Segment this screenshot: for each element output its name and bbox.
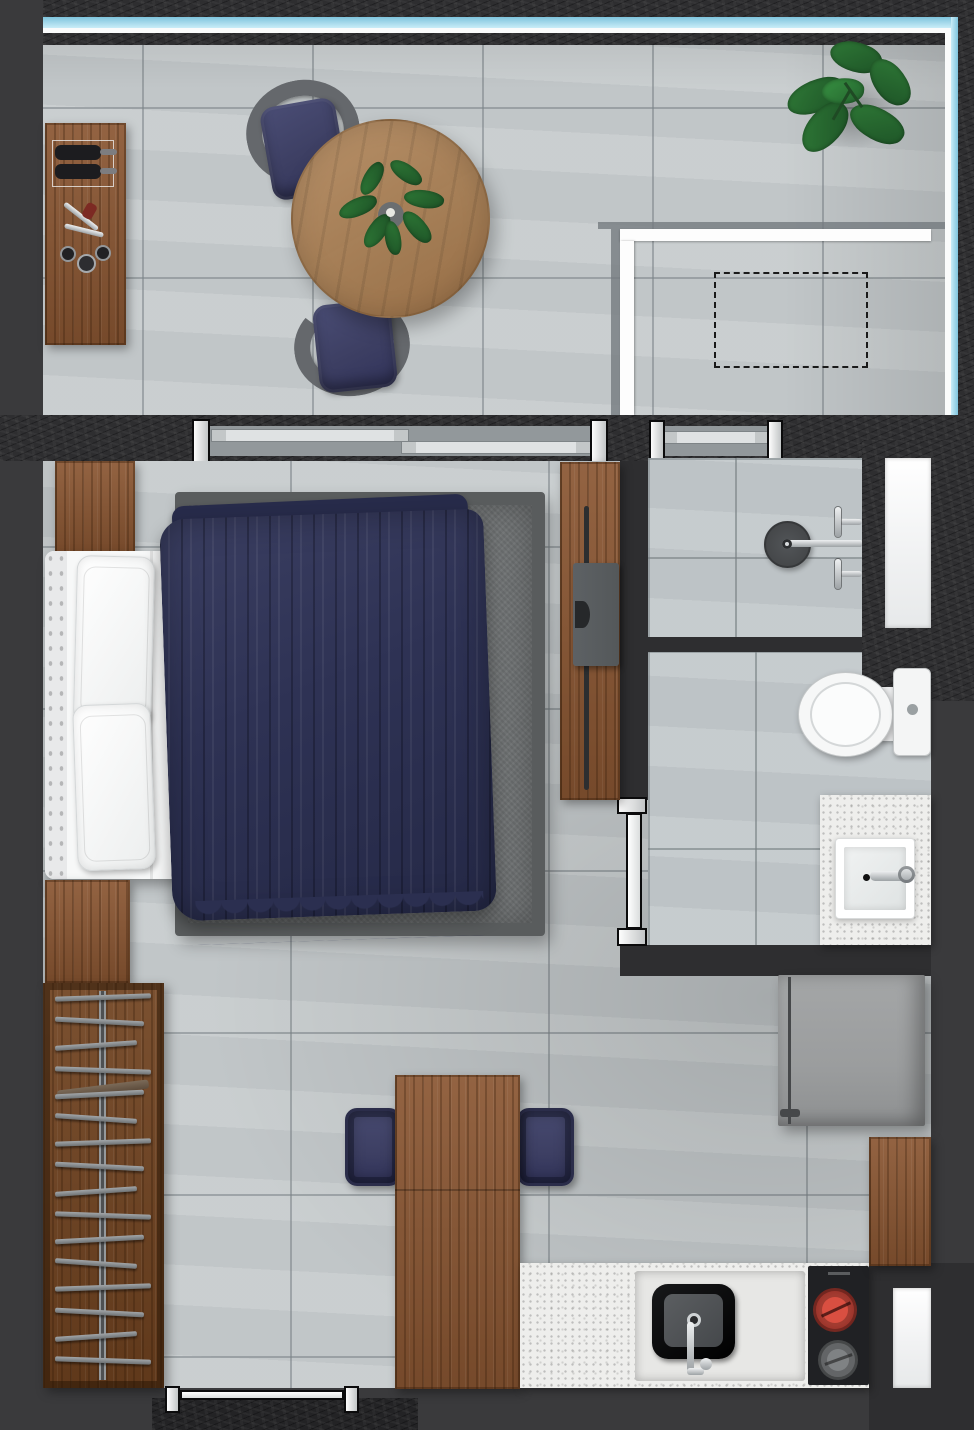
mixer-valve-1-stem (840, 519, 862, 525)
table-plant-leaf (336, 192, 380, 221)
stool-east (517, 1108, 574, 1186)
pillow-north (73, 555, 155, 725)
stool-west (345, 1108, 401, 1186)
wc-floor-joint-v (755, 651, 757, 946)
table-plant-leaf (384, 220, 403, 255)
bedroom-sliding-door-panel-b (401, 441, 591, 454)
table-plant-leaf (387, 154, 426, 190)
wine-bottle-1-neck (100, 149, 117, 155)
clothes-hanger (55, 1186, 137, 1197)
bathroom-south-wall (620, 945, 931, 976)
shower-window (885, 458, 931, 628)
table-plant-leaf (355, 159, 390, 198)
bed-headboard (45, 551, 67, 879)
shower-room-floor (648, 458, 862, 638)
bench-strip (45, 880, 130, 983)
dashed-unit-outline (714, 272, 868, 368)
parapet-line-v (620, 241, 634, 415)
bedroom-sliding-door-panel-a (211, 429, 409, 442)
clothes-hanger (55, 1041, 137, 1052)
entrance-door-leaf (180, 1390, 344, 1400)
entrance-door-jamb-west (165, 1386, 180, 1413)
kitchen-faucet (687, 1322, 694, 1372)
dining-table (395, 1075, 520, 1389)
shower-floor-joint-h (648, 557, 862, 559)
clothes-hanger (55, 1331, 137, 1342)
kitchen-faucet-handle (700, 1358, 712, 1370)
bathroom-door-jamb-bottom (617, 928, 647, 946)
parapet-line-h (620, 229, 931, 241)
shower-window-jamb-east (767, 420, 783, 463)
table-plant-leaf (403, 186, 446, 212)
bedroom-bathroom-wall (620, 461, 648, 800)
vanity-faucet-base (898, 866, 915, 883)
table-plant-leaf (399, 206, 436, 247)
mixer-valve-2-handle (835, 559, 841, 589)
parapet-shadow-v (611, 229, 620, 415)
bar-glass-2 (77, 254, 96, 273)
table-plant (336, 160, 444, 268)
wine-bottle-2 (55, 164, 101, 179)
refrigerator (778, 975, 925, 1126)
wardrobe-rail (99, 991, 106, 1380)
clothes-hanger (55, 1113, 137, 1124)
bar-glass-3 (95, 245, 111, 261)
kitchen-window (893, 1288, 931, 1388)
wine-bottle-2-neck (100, 168, 117, 174)
kitchen-faucet-elbow (687, 1368, 704, 1375)
glass-railing-east (951, 17, 958, 415)
parapet-shadow-h (598, 222, 945, 229)
toilet-seat (810, 682, 881, 747)
headboard-accent-panel (55, 461, 135, 554)
cooktop-controls (828, 1272, 850, 1275)
open-wardrobe (43, 983, 164, 1388)
bedroom-door-jamb-west (192, 419, 210, 463)
bathroom-door-leaf (626, 813, 642, 929)
mixer-valve-1-handle (835, 507, 841, 537)
refrigerator-handle (780, 1109, 800, 1117)
wine-bottle-1 (55, 145, 101, 160)
vanity-sink-drain (863, 874, 870, 881)
shower-pipe (786, 540, 862, 547)
shower-wc-divider-wall (645, 637, 862, 652)
toilet-flush-button (907, 704, 918, 715)
bar-glass-1 (60, 246, 76, 262)
refrigerator-hinge-line (788, 977, 791, 1124)
dining-table-seam (395, 1189, 520, 1191)
balcony-east-wall (958, 0, 974, 418)
corner-floor-plant (778, 36, 918, 166)
bedroom-door-jamb-east (590, 419, 608, 463)
shower-floor-joint-v (735, 458, 737, 638)
shower-head-center (782, 539, 792, 549)
pillow-south (72, 703, 156, 872)
shower-window-jamb-west (649, 420, 665, 463)
tv-stand-notch (575, 601, 590, 628)
bathroom-door-jamb-top (617, 797, 647, 814)
glass-railing-north (43, 17, 958, 28)
navy-duvet (159, 508, 497, 921)
floor-plan-canvas (0, 0, 974, 1430)
shower-sliding-window-panel (664, 431, 768, 444)
tall-cabinet (869, 1137, 931, 1266)
balcony-north-wall-outer (43, 0, 974, 17)
mixer-valve-2-stem (840, 571, 862, 577)
table-plant-flower (386, 208, 395, 217)
doormat (152, 1398, 418, 1430)
clothes-hanger (55, 1066, 151, 1074)
entrance-door-jamb-east (344, 1386, 359, 1413)
clothes-hanger (55, 1258, 137, 1269)
